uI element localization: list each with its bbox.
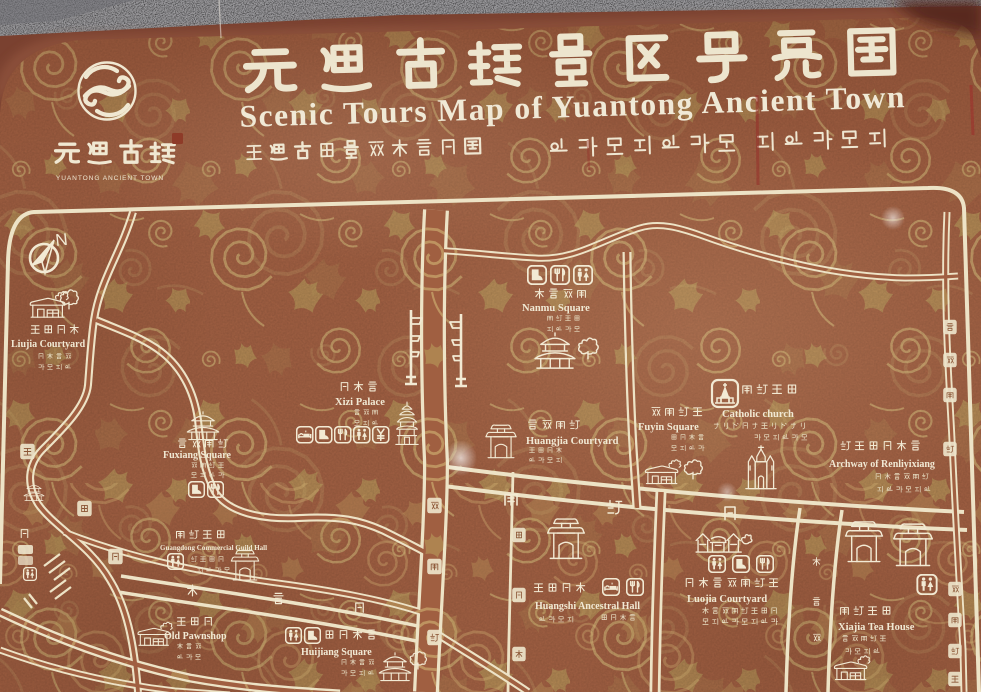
svg-text:Fuxiang Square: Fuxiang Square [163, 450, 231, 461]
svg-text:Guangdong Commercial Guild Hal: Guangdong Commercial Guild Hall [160, 544, 267, 552]
svg-text:N: N [54, 230, 68, 250]
svg-text:Huangjia Courtyard: Huangjia Courtyard [526, 436, 619, 447]
svg-text:Xiajia Tea House: Xiajia Tea House [838, 622, 915, 633]
svg-text:Liujia Courtyard: Liujia Courtyard [11, 339, 86, 350]
svg-text:Huangshi Ancestral Hall: Huangshi Ancestral Hall [535, 601, 640, 612]
svg-text:Luojia Courtyard: Luojia Courtyard [687, 594, 767, 605]
svg-text:Catholic church: Catholic church [722, 409, 794, 420]
svg-text:Archway of Renliyixiang: Archway of Renliyixiang [829, 459, 935, 470]
svg-text:YUANTONG ANCIENT TOWN: YUANTONG ANCIENT TOWN [56, 175, 164, 182]
svg-text:Huijiang Square: Huijiang Square [301, 647, 372, 658]
svg-text:Old Pawnshop: Old Pawnshop [164, 631, 227, 642]
svg-text:Nanmu Square: Nanmu Square [522, 303, 590, 314]
svg-text:Xizi Palace: Xizi Palace [335, 397, 385, 408]
svg-text:Fuyin Square: Fuyin Square [638, 422, 699, 433]
